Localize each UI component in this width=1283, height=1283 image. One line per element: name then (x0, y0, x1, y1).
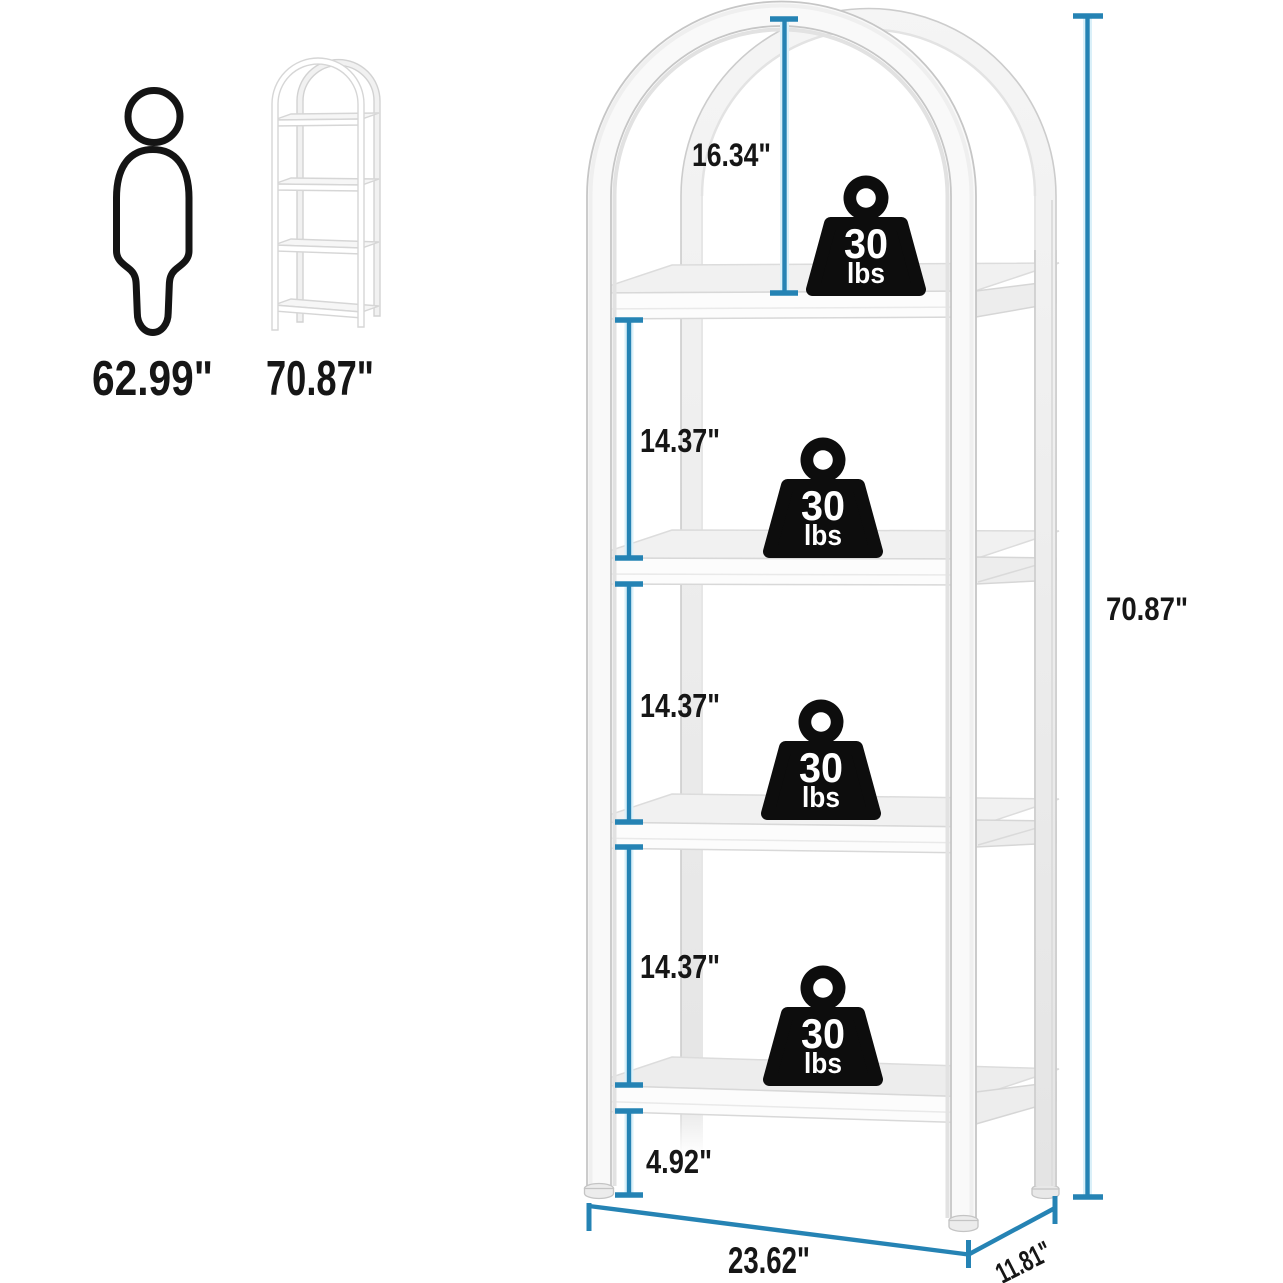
svg-text:14.37": 14.37" (640, 948, 720, 985)
svg-text:14.37": 14.37" (640, 687, 720, 724)
svg-text:14.37": 14.37" (640, 422, 720, 459)
svg-text:lbs: lbs (847, 258, 885, 290)
svg-text:70.87": 70.87" (266, 352, 374, 406)
svg-text:16.34": 16.34" (692, 137, 771, 173)
svg-text:4.92": 4.92" (646, 1143, 712, 1180)
svg-text:70.87": 70.87" (1106, 591, 1188, 627)
svg-text:lbs: lbs (804, 520, 842, 552)
svg-text:lbs: lbs (804, 1048, 842, 1080)
svg-text:23.62": 23.62" (728, 1240, 810, 1281)
svg-text:62.99": 62.99" (92, 352, 213, 406)
svg-text:lbs: lbs (802, 782, 840, 814)
